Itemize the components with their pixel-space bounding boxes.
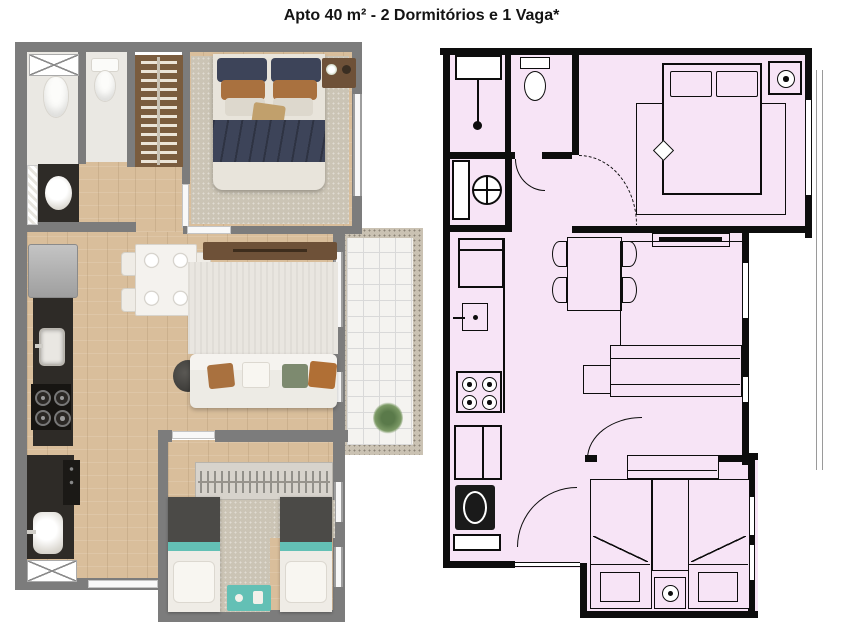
nightstand-decor-2 — [253, 591, 263, 604]
balcony-rail — [816, 70, 823, 470]
kitchen-sink — [39, 328, 65, 366]
bedroom2-door — [172, 431, 215, 439]
kitchen-faucet-dot — [473, 315, 478, 320]
bedroom2-wardrobe — [627, 455, 719, 479]
stove-burner-1 — [35, 390, 51, 406]
laundry-appliance — [63, 460, 80, 505]
balcony-sliding-door — [742, 263, 749, 318]
washbasin — [472, 175, 502, 205]
tv-console-handle — [233, 249, 307, 252]
bed-right-pillow — [285, 561, 327, 603]
stove-burner-2 — [54, 390, 70, 406]
refrigerator — [458, 238, 504, 288]
wardrobe-front-line — [628, 470, 717, 471]
dining-chair-2 — [552, 277, 567, 303]
bed-right-teal-stripe — [280, 542, 332, 551]
closet-hall-floor — [135, 167, 183, 232]
master-bedroom-door — [182, 184, 189, 228]
sofa — [610, 345, 742, 397]
bed-left-teal-stripe — [168, 542, 220, 551]
bed-pillow-2 — [716, 71, 758, 97]
balcony-window — [742, 377, 749, 402]
wall-top — [15, 42, 362, 52]
nightstand-lamp — [342, 65, 351, 74]
entry-door — [88, 580, 158, 588]
bedroom1-nightstand — [768, 61, 802, 95]
shower-box — [29, 54, 79, 76]
shower-drain-line — [477, 80, 479, 125]
shower-screen — [27, 165, 38, 225]
wall-bedroom2-bottom — [580, 611, 758, 618]
nightstand-lamp-icon — [777, 70, 795, 88]
balcony-plant — [373, 402, 403, 434]
tv-console — [203, 242, 337, 260]
sofa-side-table — [583, 365, 612, 394]
bed-left-fold-line — [593, 536, 648, 562]
wall-bath-divider — [505, 55, 511, 157]
laundry-tank — [455, 485, 495, 530]
bed-right-blanket — [280, 497, 332, 542]
nightstand — [322, 58, 356, 88]
living-rug-outline — [620, 241, 743, 357]
floor-plan-technical — [440, 45, 832, 625]
bed-right-divider — [689, 564, 748, 565]
stove — [456, 371, 502, 413]
sofa-seat-line — [611, 384, 740, 385]
stove-burner-3 — [462, 395, 477, 410]
laundry-faucet — [27, 530, 36, 534]
master-bedroom-window — [353, 94, 362, 196]
bed-left-pillow — [600, 572, 640, 602]
laundry-sink — [33, 512, 63, 554]
wall-bedroom1-left — [572, 55, 579, 155]
floor-plan-rendered — [15, 42, 425, 622]
wall-bath-bottom-right — [542, 152, 572, 159]
bed-left-pillow — [173, 561, 215, 603]
kitchen-faucet-line — [453, 317, 465, 319]
wall-top — [440, 48, 812, 55]
bed-pillow-navy-1 — [217, 58, 267, 82]
bed-right-fold-line — [691, 536, 746, 562]
laundry-tank-basin — [463, 491, 487, 524]
bedroom2-window-2 — [334, 547, 343, 587]
closet-wardrobe — [135, 55, 183, 167]
wall-left — [15, 42, 27, 590]
stove-burner-4 — [54, 410, 71, 427]
bed-left-divider — [591, 564, 650, 565]
bedroom2-rug-stem — [652, 479, 690, 571]
dining-table — [567, 237, 622, 311]
closet-rod — [157, 57, 160, 165]
wall-bedroom2-left-low — [580, 563, 587, 618]
stove-burner-2 — [482, 377, 497, 392]
sofa-pillow-green — [282, 364, 308, 388]
laundry-counter — [454, 425, 502, 480]
stove-burner-4 — [482, 395, 497, 410]
toilet-bidet — [43, 76, 69, 118]
bedroom2-lamp-icon — [662, 585, 679, 602]
wall-bath-divider — [78, 52, 86, 164]
toilet-bowl — [524, 71, 546, 101]
dining-chair-1 — [552, 241, 567, 267]
sofa-back-line — [611, 358, 740, 359]
bedroom2-bed-right — [688, 479, 750, 609]
stove-burner-1 — [462, 377, 477, 392]
wall-bedroom2-left — [158, 440, 168, 622]
sofa-pillow-orange — [308, 361, 338, 390]
wall-basin-right — [505, 157, 512, 232]
nightstand-decor-1 — [235, 594, 243, 602]
refrigerator-divider — [460, 249, 502, 251]
sofa-pillow-brown — [207, 363, 235, 390]
bed-pillow-1 — [670, 71, 712, 97]
sofa — [190, 354, 337, 408]
bedroom1-bed — [662, 63, 762, 195]
bed-pillow-navy-2 — [271, 58, 321, 82]
bedroom2-wardrobe — [195, 462, 333, 500]
bed-left-blanket — [168, 497, 220, 542]
nightstand-flowers — [326, 64, 337, 75]
kitchen-faucet — [35, 344, 43, 348]
washer-space — [27, 560, 77, 582]
bedroom2-nightstand — [654, 577, 686, 609]
bedroom2-bed-left — [590, 479, 652, 609]
bedroom-living-door — [187, 226, 231, 234]
bedroom2-bed-right — [280, 497, 332, 612]
wall-basin-bottom — [450, 225, 512, 232]
wall-laundry-bottom — [443, 561, 515, 568]
washer-space — [453, 534, 501, 551]
wall-bedroom2-top — [215, 430, 348, 442]
refrigerator — [28, 244, 78, 298]
bedroom2-wardrobe-rod — [198, 481, 330, 483]
bedroom2-bed-left — [168, 497, 220, 612]
bedroom2-nightstand — [227, 585, 271, 611]
bed-right-pillow — [698, 572, 738, 602]
stove — [31, 384, 71, 430]
shower-box — [455, 55, 502, 80]
bed-pillow-brown-2 — [273, 80, 317, 100]
wall-closet-left — [127, 52, 135, 167]
wall-left — [443, 48, 450, 568]
bed-pillow-brown-1 — [221, 80, 265, 100]
bed-blanket — [213, 120, 325, 162]
entry-threshold — [515, 562, 580, 567]
wall-bedroom-left — [182, 52, 190, 184]
bedroom1-window — [805, 100, 812, 195]
shower-drain — [473, 121, 482, 130]
living-rug — [188, 262, 338, 354]
bedroom2-window-1 — [334, 482, 343, 522]
toilet-tank — [520, 57, 550, 69]
shaft-box — [452, 160, 470, 220]
wc-toilet-bowl — [94, 70, 116, 102]
laundry-counter-line — [482, 427, 484, 478]
master-bed — [213, 54, 325, 190]
kitchen-sink — [462, 303, 488, 331]
stove-burner-3 — [35, 410, 51, 426]
bath-sink — [45, 176, 72, 210]
sofa-pillow-white — [242, 362, 270, 388]
floor-plan-image: Apto 40 m² - 2 Dormitórios e 1 Vaga* — [0, 0, 843, 633]
wall-bedroom1-bottom — [572, 226, 812, 233]
page-title: Apto 40 m² - 2 Dormitórios e 1 Vaga* — [0, 7, 843, 25]
